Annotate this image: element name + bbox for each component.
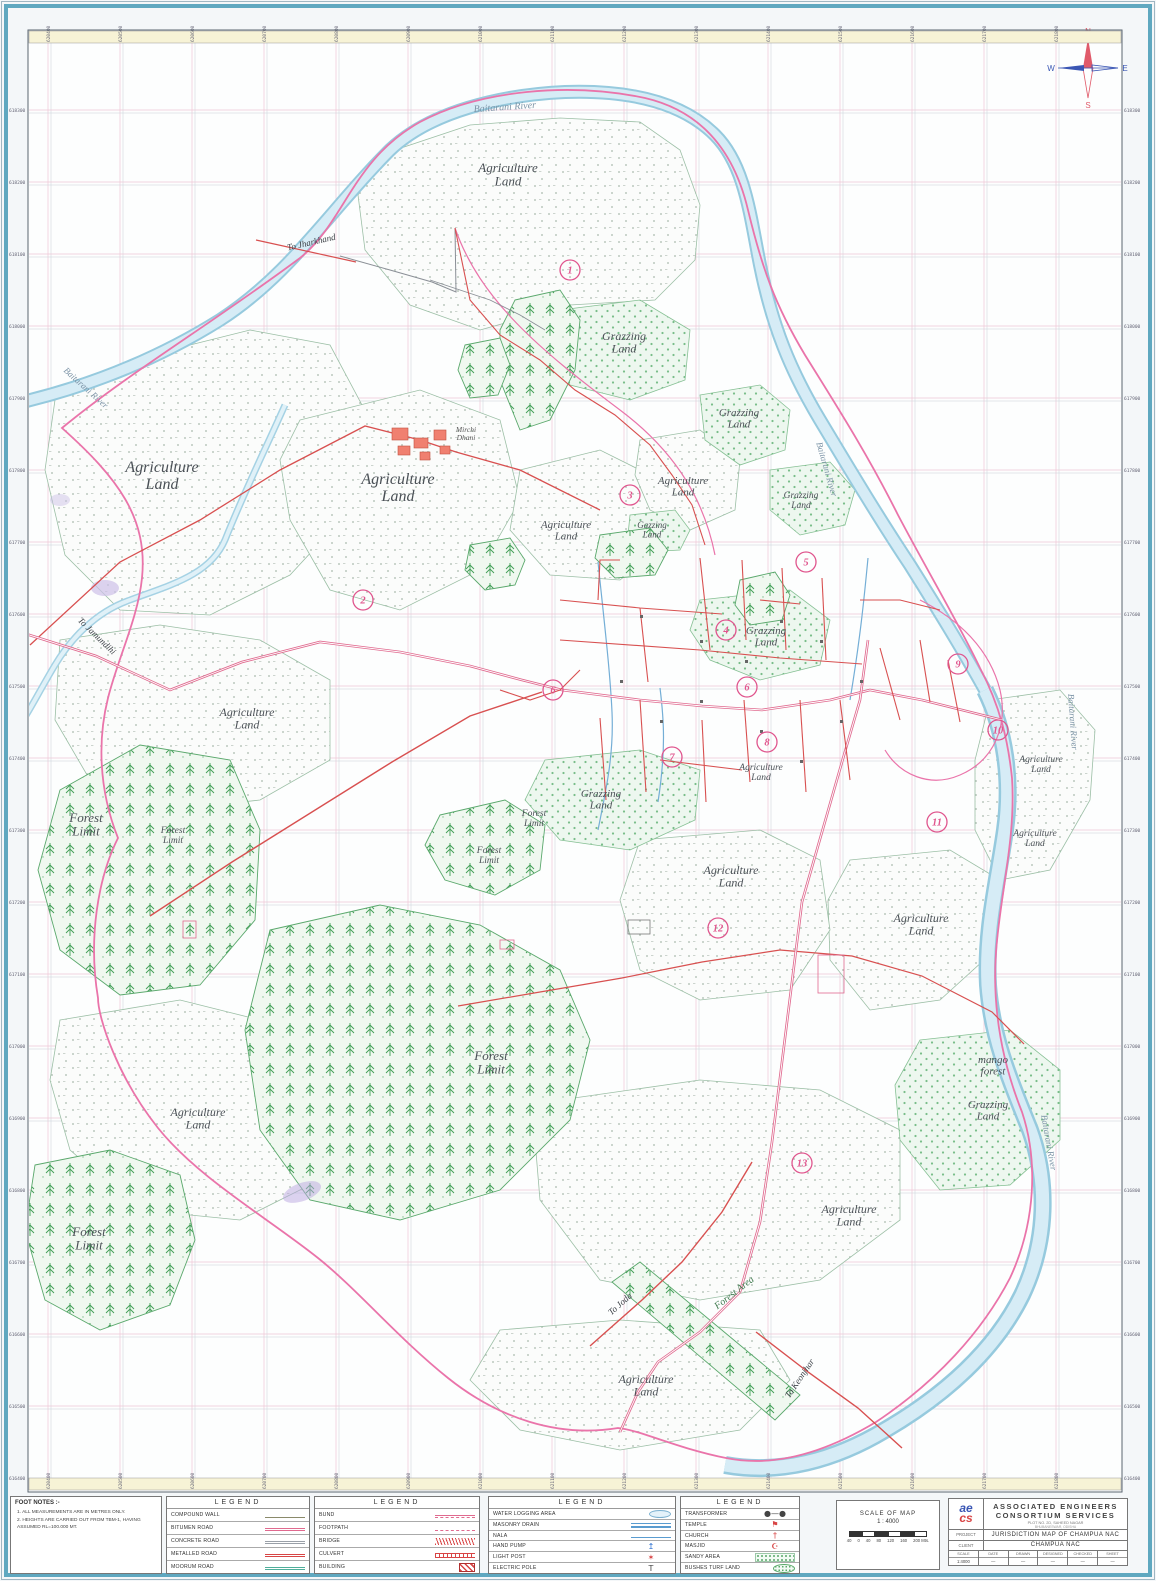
legend-swatch-light-post: ✶ [631,1553,671,1562]
grid-tick-label: 617800 [1124,468,1141,474]
legend-swatch-bridge [435,1538,475,1545]
grid-tick-label: 616600 [9,1332,26,1338]
ward-number: 2 [359,596,366,607]
grid-tick-label: 620400 [46,1472,52,1489]
legend-label: BUSHES TURF LAND [685,1565,740,1571]
map-label: ForestLimit [71,1224,106,1253]
legend-title: LEGEND [315,1497,479,1509]
grid-tick-label: 620500 [118,25,124,42]
grid-tick-label: 620600 [190,1472,196,1489]
grid-tick-label: 617200 [9,900,26,906]
scale-bar [837,1531,939,1537]
legend-swatch-culvert [435,1553,475,1558]
footnotes-title: FOOT NOTES :- [11,1497,161,1508]
legend-swatch-concrete-road [265,1541,305,1544]
legend-swatch-hand-pump: ↥ [631,1542,671,1551]
legend-swatch-building [459,1563,475,1572]
company-address2: BHUBANESWAR, ODISHA [984,1525,1127,1529]
project-label: PROJECT [949,1530,984,1540]
grid-tick-label: 618000 [1124,324,1141,330]
grid-tick-label: 618300 [9,108,26,114]
grid-tick-label: 617600 [1124,612,1141,618]
legend-label: CONCRETE ROAD [171,1538,219,1544]
legend-title: LEGEND [681,1497,799,1509]
grid-tick-label: 617300 [9,828,26,834]
legend-row: NALA [489,1530,675,1541]
legend-label: CULVERT [319,1551,344,1557]
legend-swatch-metalled-road [265,1554,305,1557]
legend-label: COMPOUND WALL [171,1512,220,1518]
legend-row: BUSHES TURF LAND [681,1562,799,1573]
grid-tick-label: 617000 [1124,1044,1141,1050]
legend-panel-water: LEGEND WATER LOGGING AREAMASONRY DRAINNA… [488,1496,676,1574]
grid-tick-label: 616400 [1124,1476,1141,1482]
ward-number: 13 [797,1159,808,1170]
legend-label: BITUMEN ROAD [171,1525,213,1531]
grid-tick-label: 621800 [1054,1472,1060,1489]
legend-swatch-bushes-turf-land [773,1564,795,1573]
map-sheet: 123456678910111213 Baitarani RiverAgricu… [0,0,1156,1581]
legend-swatch-masjid: ☪ [755,1542,795,1551]
legend-label: SANDY AREA [685,1554,720,1560]
grid-tick-label: 621600 [910,1472,916,1489]
legend-label: BUILDING [319,1564,345,1570]
grid-tick-label: 621700 [982,1472,988,1489]
grid-tick-label: 620800 [334,25,340,42]
grid-tick-label: 621600 [910,25,916,42]
footnote-item: 2. HEIGHTS ARE CARRIED OUT FROM TBM-1, H… [11,1516,161,1531]
legend-row: BRIDGE [315,1534,479,1547]
legend-swatch-bund [435,1515,475,1518]
map-label: ForestLimit [160,826,186,846]
company-name-line1: ASSOCIATED ENGINEERS [984,1502,1127,1511]
grid-tick-label: 616900 [9,1116,26,1122]
grid-tick-label: 621200 [622,1472,628,1489]
legend-label: HAND PUMP [493,1543,526,1549]
legend-label: MASJID [685,1543,705,1549]
ward-number: 8 [764,738,770,749]
footnote-item: 1. ALL MEASUREMENTS ARE IN METRES ONLY. [11,1508,161,1516]
grid-tick-label: 620500 [118,1472,124,1489]
grid-tick-label: 617100 [1124,972,1141,978]
jurisdiction-map-canvas: 123456678910111213 Baitarani RiverAgricu… [0,0,1156,1581]
legend-label: BUND [319,1512,335,1518]
grid-tick-label: 621700 [982,25,988,42]
grid-tick-label: 621300 [694,1472,700,1489]
client-label: CLIENT [949,1541,984,1551]
footnotes-panel: FOOT NOTES :- 1. ALL MEASUREMENTS ARE IN… [10,1496,162,1574]
grid-tick-label: 616500 [9,1404,26,1410]
grid-tick-label: 618200 [1124,180,1141,186]
legend-row: FOOTPATH [315,1521,479,1534]
ward-number: 1 [567,266,572,277]
grid-tick-label: 621800 [1054,25,1060,42]
compass-s: S [1085,101,1090,110]
legend-row: TRANSFORMER●—● [681,1509,799,1519]
grid-tick-label: 617400 [9,756,26,762]
ward-number: 11 [932,818,942,829]
ward-number: 5 [803,558,808,569]
legend-row: TEMPLE⚑ [681,1519,799,1530]
legend-label: NALA [493,1533,507,1539]
ward-number: 3 [626,491,632,502]
grid-tick-label: 620800 [334,1472,340,1489]
ward-number: 7 [669,753,675,764]
grid-tick-label: 618100 [9,252,26,258]
legend-label: TEMPLE [685,1522,707,1528]
grid-tick-label: 616700 [9,1260,26,1266]
legend-title: LEGEND [167,1497,309,1509]
grid-tick-label: 616700 [1124,1260,1141,1266]
legend-label: FOOTPATH [319,1525,348,1531]
legend-row: MASONRY DRAIN [489,1519,675,1530]
legend-row: HAND PUMP↥ [489,1540,675,1551]
grid-tick-label: 621000 [478,1472,484,1489]
legend-row: CULVERT [315,1547,479,1560]
legend-title: LEGEND [489,1497,675,1509]
grid-tick-label: 621200 [622,25,628,42]
grid-tick-label: 616800 [9,1188,26,1194]
legend-label: CHURCH [685,1533,709,1539]
grid-tick-label: 617300 [1124,828,1141,834]
grid-tick-label: 616400 [9,1476,26,1482]
legend-label: ELECTRIC POLE [493,1565,537,1571]
revision-table: SCALE1:4000 DATE— DRAWN— DESIGNED— CHECK… [949,1551,1127,1565]
grid-tick-label: 616500 [1124,1404,1141,1410]
grid-tick-label: 617900 [9,396,26,402]
scale-bar-labels: 4004080120160200 Mts. [837,1538,939,1543]
grid-tick-label: 617900 [1124,396,1141,402]
company-name-line2: CONSORTIUM SERVICES [984,1511,1127,1520]
legend-panel-roads: LEGEND COMPOUND WALLBITUMEN ROADCONCRETE… [166,1496,310,1574]
grid-tick-label: 617500 [1124,684,1141,690]
legend-label: MASONRY DRAIN [493,1522,539,1528]
grid-tick-label: 620400 [46,25,52,42]
grid-tick-label: 618300 [1124,108,1141,114]
grid-tick-label: 618000 [9,324,26,330]
grid-tick-label: 621000 [478,25,484,42]
legend-row: COMPOUND WALL [167,1509,309,1521]
grid-tick-label: 621300 [694,25,700,42]
legend-row: BUILDING [315,1560,479,1573]
grid-tick-label: 621400 [766,25,772,42]
compass-w: W [1047,64,1055,73]
grid-tick-label: 618200 [9,180,26,186]
ward-number: 6 [550,686,556,697]
grid-tick-label: 617100 [9,972,26,978]
grid-tick-label: 617500 [9,684,26,690]
map-label: ForestLimit [476,846,502,866]
map-label: ForestLimit [473,1048,508,1077]
legend-label: MOORUM ROAD [171,1564,214,1570]
legend-label: WATER LOGGING AREA [493,1511,556,1517]
legend-swatch-bitumen-road [265,1528,305,1531]
legend-swatch-masonry-drain [631,1523,671,1528]
grid-tick-label: 620900 [406,1472,412,1489]
legend-label: LIGHT POST [493,1554,526,1560]
legend-swatch-footpath [435,1530,475,1531]
legend-swatch-electric-pole: T [631,1564,671,1573]
grid-tick-label: 617000 [9,1044,26,1050]
legend-swatch-moorum-road [265,1567,305,1570]
legend-row: ELECTRIC POLET [489,1562,675,1573]
grid-tick-label: 617700 [1124,540,1141,546]
grid-tick-label: 621500 [838,1472,844,1489]
ward-number: 6 [744,683,750,694]
grid-tick-label: 621100 [550,1472,556,1489]
map-label: ForestLimit [68,810,103,839]
scale-ratio: 1 : 4000 [837,1519,939,1525]
project-title: JURISDICTION MAP OF CHAMPUA NAC [984,1532,1127,1538]
ward-number: 10 [993,726,1004,737]
legend-row: BUND [315,1509,479,1521]
ward-number: 9 [955,660,961,671]
map-label: mangoforest [978,1054,1008,1078]
legend-row: CHURCH† [681,1530,799,1541]
map-label: ForestLimit [521,809,547,829]
compass-e: E [1122,64,1127,73]
title-block: ae cs ASSOCIATED ENGINEERS CONSORTIUM SE… [948,1498,1128,1566]
scale-title: SCALE OF MAP [837,1511,939,1517]
legend-row: CONCRETE ROAD [167,1534,309,1547]
legend-panel-landmarks: LEGEND TRANSFORMER●—●TEMPLE⚑CHURCH†MASJI… [680,1496,800,1574]
grid-tick-label: 617400 [1124,756,1141,762]
legend-row: METALLED ROAD [167,1547,309,1560]
legend-row: WATER LOGGING AREA [489,1509,675,1519]
legend-label: METALLED ROAD [171,1551,217,1557]
ward-number: 12 [713,924,724,935]
ward-number: 4 [722,626,728,637]
legend-label: BRIDGE [319,1538,340,1544]
legend-label: TRANSFORMER [685,1511,727,1517]
scale-panel: SCALE OF MAP 1 : 4000 4004080120160200 M… [836,1500,940,1570]
grid-tick-label: 616800 [1124,1188,1141,1194]
legend-swatch-compound-wall [265,1517,305,1518]
grid-tick-label: 616900 [1124,1116,1141,1122]
legend-row: SANDY AREA [681,1551,799,1562]
map-label: MirchiDhani [455,425,476,442]
legend-panel-structures: LEGEND BUNDFOOTPATHBRIDGECULVERTBUILDING [314,1496,480,1574]
grid-tick-label: 616600 [1124,1332,1141,1338]
legend-row: MOORUM ROAD [167,1560,309,1573]
grid-tick-label: 618100 [1124,252,1141,258]
grid-tick-label: 620700 [262,1472,268,1489]
grid-tick-label: 617600 [9,612,26,618]
grid-tick-label: 621100 [550,25,556,42]
grid-tick-label: 621400 [766,1472,772,1489]
grid-tick-label: 617200 [1124,900,1141,906]
legend-row: BITUMEN ROAD [167,1521,309,1534]
grid-tick-label: 620900 [406,25,412,42]
company-logo: ae cs [949,1499,984,1529]
grid-tick-label: 620600 [190,25,196,42]
legend-swatch-church: † [755,1531,795,1540]
grid-tick-label: 617700 [9,540,26,546]
legend-swatch-nala [631,1537,671,1538]
legend-swatch-temple: ⚑ [755,1520,795,1529]
legend-swatch-transformer: ●—● [755,1509,795,1518]
legend-swatch-water-logging-area [649,1510,671,1518]
legend-swatch-sandy-area [755,1553,795,1562]
legend-row: MASJID☪ [681,1540,799,1551]
grid-tick-label: 620700 [262,25,268,42]
grid-tick-label: 617800 [9,468,26,474]
legend-row: LIGHT POST✶ [489,1551,675,1562]
client-name: CHAMPUA NAC [984,1542,1127,1548]
grid-tick-label: 621500 [838,25,844,42]
